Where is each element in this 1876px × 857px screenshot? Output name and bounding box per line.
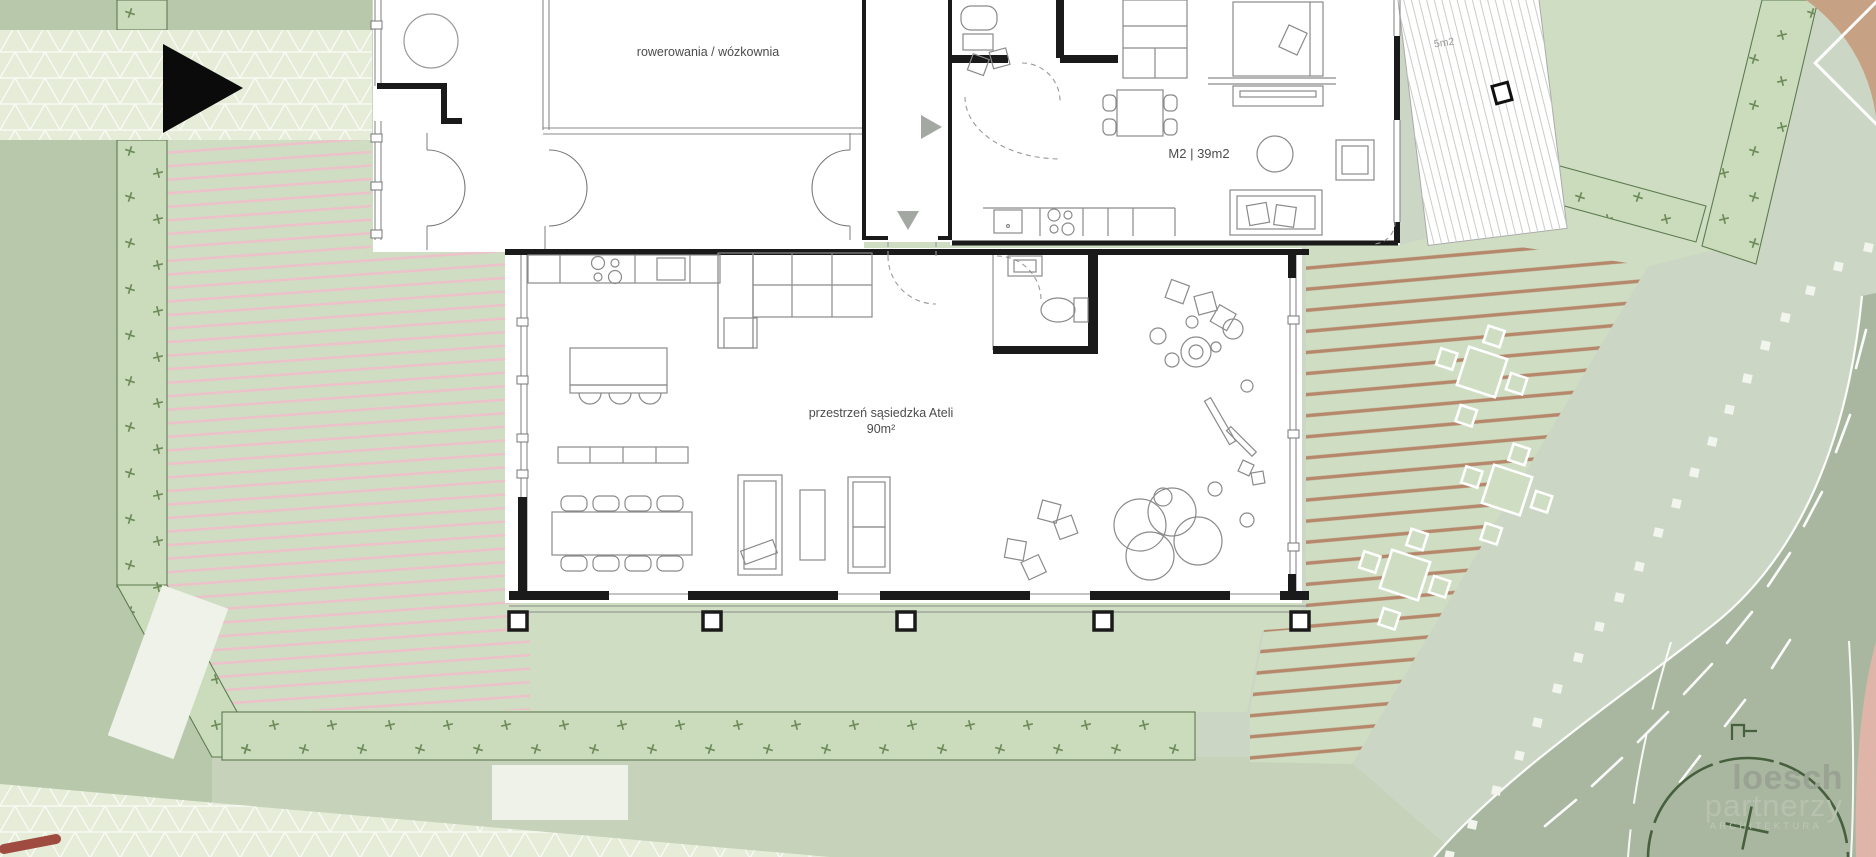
dark-green-top-band bbox=[0, 0, 372, 32]
community-room-label-line2: 90m² bbox=[867, 422, 895, 436]
white-slab-south bbox=[492, 765, 628, 820]
apartment-label: M2 | 39m2 bbox=[1168, 146, 1229, 161]
logo-suffix: partnerzy bbox=[1705, 788, 1843, 823]
logo-tagline: ARCHITEKTURA bbox=[1710, 821, 1822, 832]
community-room-label-line1: przestrzeń sąsiedzka Ateli bbox=[809, 406, 954, 420]
site-plan: rowerowania / wózkownia M2 | 39m2 5m2 pr… bbox=[0, 0, 1876, 857]
bike-room-label: rowerowania / wózkownia bbox=[637, 45, 779, 59]
balcony-post bbox=[1492, 82, 1512, 104]
